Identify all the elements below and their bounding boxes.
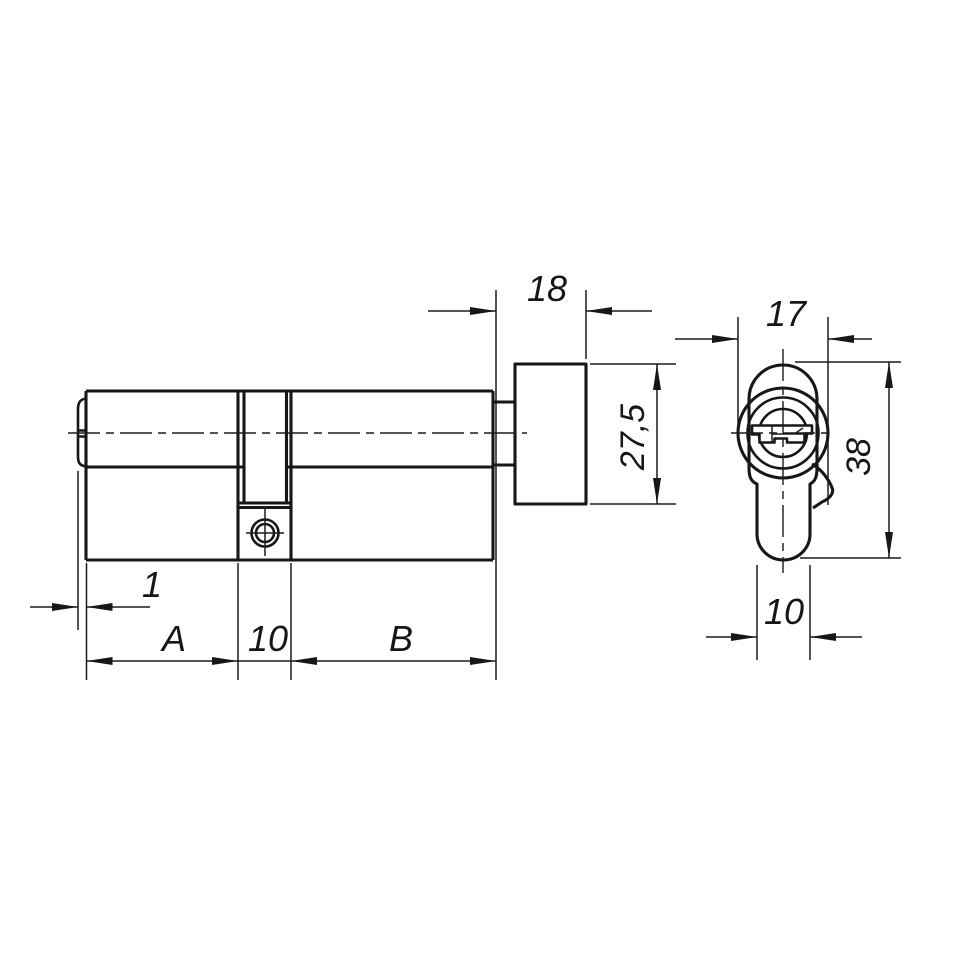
dim-profile-height: 38 (840, 362, 893, 558)
dim-tip-width: 1 (30, 564, 162, 611)
dim-foot-width-label: 10 (764, 591, 804, 632)
dim-profile-height-label: 38 (840, 438, 878, 476)
front-view (731, 349, 835, 573)
cam-outline (238, 391, 291, 508)
thumbturn-outline (515, 364, 586, 504)
dim-thumbturn-length-label: 18 (527, 268, 567, 309)
dim-profile-diameter: 17 (675, 293, 872, 343)
dimensions: 1 A 10 B 18 27,5 (30, 268, 901, 680)
dim-cam-width-label: 10 (248, 618, 288, 659)
dim-thumbturn-height-label: 27,5 (614, 404, 652, 471)
side-view (68, 364, 586, 560)
technical-drawing-canvas: 1 A 10 B 18 27,5 (0, 0, 970, 970)
dim-thumbturn-length: 18 (428, 268, 652, 315)
drawing-page: 1 A 10 B 18 27,5 (0, 0, 970, 970)
dim-thumbturn-height: 27,5 (614, 364, 661, 504)
dim-a-label: A (160, 618, 186, 659)
dim-foot-width: 10 (706, 591, 862, 641)
dim-tip-width-label: 1 (142, 564, 162, 605)
dim-profile-diameter-label: 17 (766, 293, 808, 334)
dim-b-label: B (389, 618, 413, 659)
cam-lobe (812, 464, 833, 508)
